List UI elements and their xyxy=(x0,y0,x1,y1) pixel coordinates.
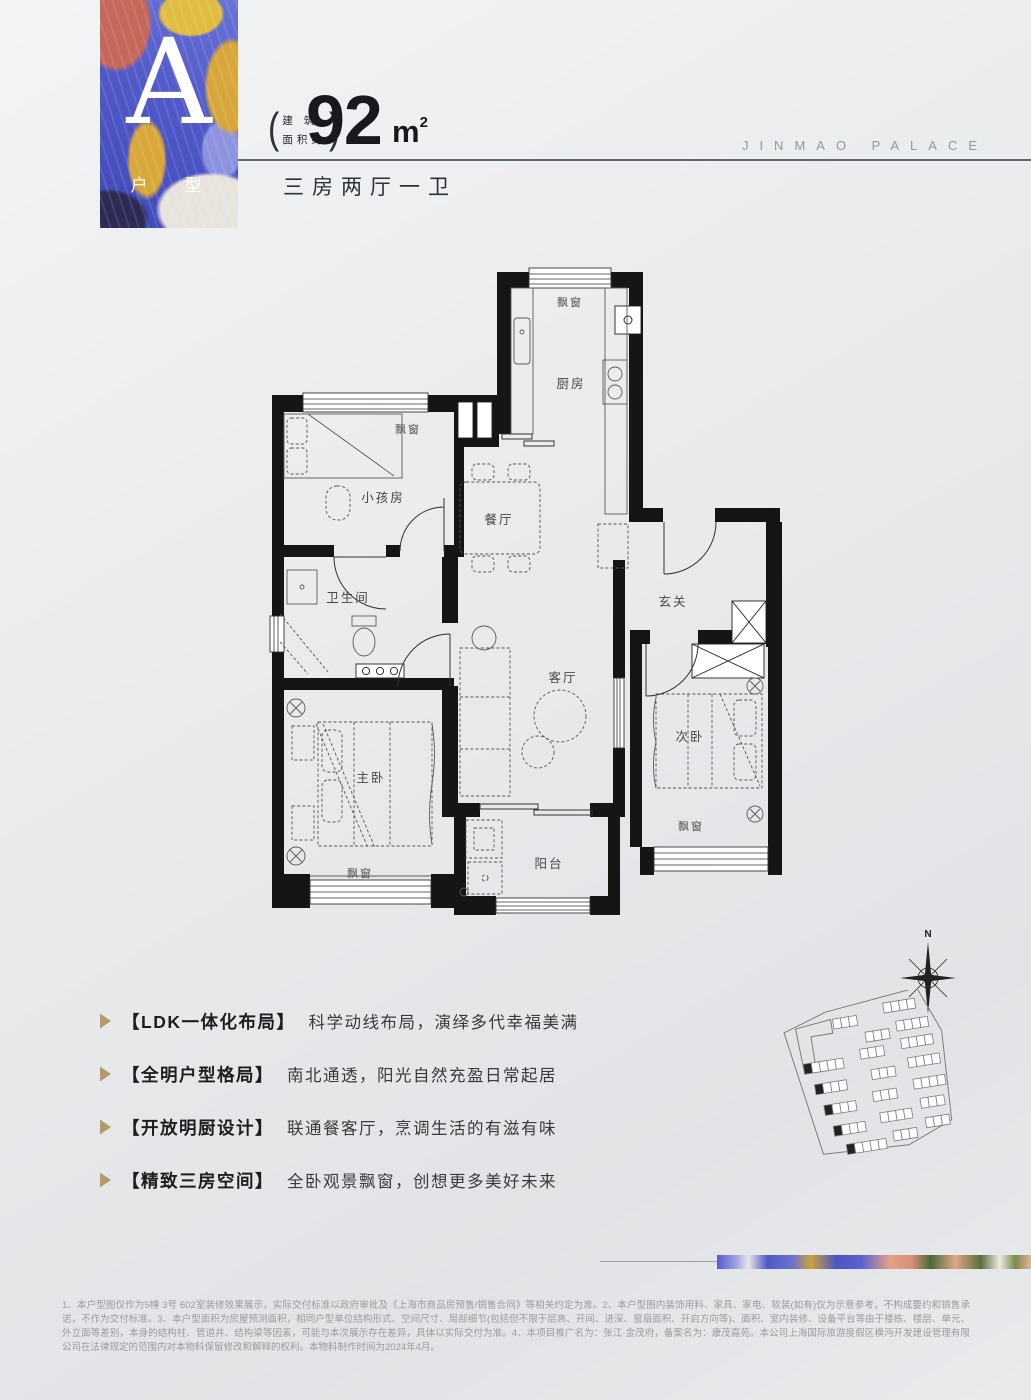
room-label-kids: 小孩房 xyxy=(361,490,405,505)
area-unit: m2 xyxy=(392,114,428,150)
disclaimer-text: 1、本户型图仅作为5幢 3号 602室装修效果展示，实际交付标准以政府审批及《上… xyxy=(62,1299,970,1355)
feature-desc: 南北通透，阳光自然充盈日常起居 xyxy=(287,1062,557,1086)
triangle-bullet-icon xyxy=(100,1014,111,1029)
closet-x-marks xyxy=(362,316,766,678)
room-label-foyer: 玄关 xyxy=(658,594,687,609)
feature-list: 【LDK一体化布局】 科学动线布局，演绎多代幸福美满 【全明户型格局】 南北通透… xyxy=(100,1011,578,1223)
feature-desc: 科学动线布局，演绎多代幸福美满 xyxy=(308,1009,578,1033)
triangle-bullet-icon xyxy=(100,1120,111,1135)
room-labels: 飘窗 厨房 飘窗 小孩房 餐厅 卫生间 玄关 客厅 主卧 次卧 飘窗 飘窗 阳台 xyxy=(326,295,704,880)
room-label-living: 客厅 xyxy=(548,670,577,685)
unit-type-card: A 户 型 xyxy=(100,0,238,228)
room-label-master: 主卧 xyxy=(356,770,385,785)
compass-north-label: N xyxy=(924,929,931,940)
floor-plan: 飘窗 厨房 飘窗 小孩房 餐厅 卫生间 玄关 客厅 主卧 次卧 飘窗 飘窗 阳台 xyxy=(268,262,798,922)
floor-plan-drawing: 飘窗 厨房 飘窗 小孩房 餐厅 卫生间 玄关 客厅 主卧 次卧 飘窗 飘窗 阳台 xyxy=(268,262,798,922)
brand-wordmark: JINMAO PALACE xyxy=(742,138,988,153)
room-label-dining: 餐厅 xyxy=(484,512,513,527)
room-label-bay-kids: 飘窗 xyxy=(395,422,421,436)
feature-tag: 【LDK一体化布局】 xyxy=(122,1009,295,1034)
room-label-kitchen: 厨房 xyxy=(556,376,585,391)
room-label-second: 次卧 xyxy=(675,729,704,744)
site-plan xyxy=(778,990,963,1165)
site-plan-drawing xyxy=(780,990,958,1161)
feature-row: 【全明户型格局】 南北通透，阳光自然充盈日常起居 xyxy=(100,1064,578,1084)
room-label-bay-master: 飘窗 xyxy=(347,866,373,880)
poster-page: A 户 型 ( 建 筑 面积约 ) 92 m2 三房两厅一卫 JINMAO PA… xyxy=(0,0,1031,1400)
feature-row: 【LDK一体化布局】 科学动线布局，演绎多代幸福美满 xyxy=(100,1011,578,1031)
feature-tag: 【精致三房空间】 xyxy=(122,1168,274,1193)
footer-art-strip xyxy=(717,1255,1031,1269)
feature-desc: 全卧观景飘窗，创想更多美好未来 xyxy=(287,1168,557,1192)
area-value: 92 xyxy=(306,80,382,160)
feature-desc: 联通餐客厅，烹调生活的有滋有味 xyxy=(287,1115,557,1139)
triangle-bullet-icon xyxy=(100,1173,111,1188)
feature-row: 【精致三房空间】 全卧观景飘窗，创想更多美好未来 xyxy=(100,1170,578,1190)
unit-letter: A xyxy=(100,22,238,142)
feature-tag: 【开放明厨设计】 xyxy=(122,1115,274,1140)
header-divider xyxy=(238,159,1031,161)
room-label-balcony: 阳台 xyxy=(534,856,563,871)
shafts-closets xyxy=(356,306,766,678)
bracket-left: ( xyxy=(268,105,279,154)
triangle-bullet-icon xyxy=(100,1067,111,1082)
unit-label: 户 型 xyxy=(110,171,238,196)
feature-row: 【开放明厨设计】 联通餐客厅，烹调生活的有滋有味 xyxy=(100,1117,578,1137)
layout-summary: 三房两厅一卫 xyxy=(283,171,457,201)
room-label-bay-second: 飘窗 xyxy=(678,819,704,833)
footer-hairline xyxy=(600,1261,718,1262)
feature-tag: 【全明户型格局】 xyxy=(122,1062,274,1087)
room-label-bath: 卫生间 xyxy=(326,590,370,605)
room-label-bay-kitchen: 飘窗 xyxy=(557,295,583,309)
